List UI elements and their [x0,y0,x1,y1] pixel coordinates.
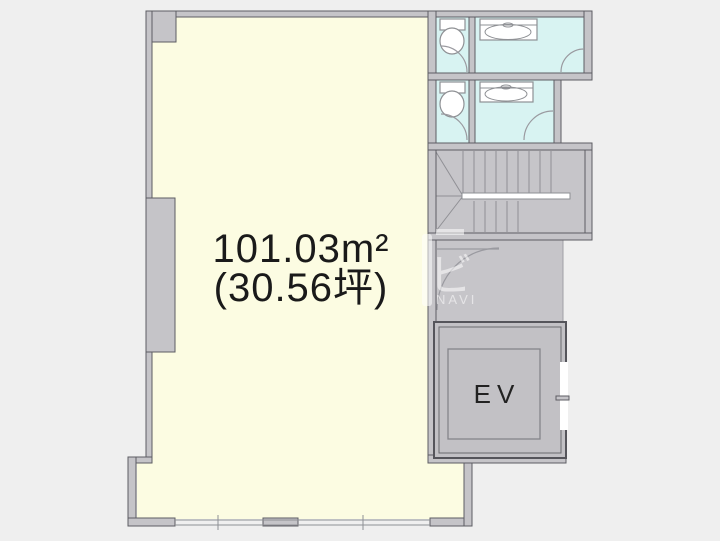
toilet-bowl-icon [440,28,464,54]
wall-outer-bottom-left [128,457,136,526]
wall-unit2-right [554,80,561,143]
wall-stairs-top [428,143,592,150]
watermark-latin: NAVI [436,292,477,307]
wall-top [146,11,592,17]
wall-between-units [428,73,592,80]
area-label-m2: 101.03m² [213,227,390,271]
wall-unit1-right [584,11,592,80]
wall-right-lower [464,463,472,526]
wall-toilet2-divider [469,80,475,143]
area-label-tsubo: (30.56坪) [214,266,389,310]
elevator-door-tick [556,396,569,400]
sink-counter-icon [480,19,537,40]
pillar-left-mid [146,198,175,352]
toilet-bowl-icon [440,91,464,117]
stair-handrail [462,193,570,199]
elevator-door-gap [560,362,568,396]
wall-toilet1-divider [469,17,475,73]
wall-bottom-left-corner [128,518,175,526]
wall-stairs-right [585,150,592,233]
watermark-stroke [436,229,464,235]
floorplan-image: EV ビ NAVI 101.03m² (30.56坪) [0,0,720,541]
elevator-icon: EV [434,322,569,458]
floorplan-canvas: EV ビ NAVI 101.03m² (30.56坪) [0,0,720,541]
staircase-zone [436,150,585,233]
elevator-door-gap [560,400,568,430]
elevator-label: EV [474,379,521,409]
